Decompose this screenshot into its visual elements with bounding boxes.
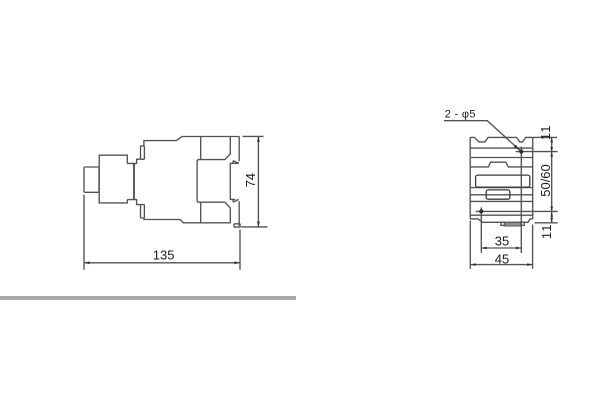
svg-text:35: 35: [495, 233, 509, 248]
svg-text:45: 45: [495, 252, 509, 267]
svg-text:135: 135: [153, 247, 175, 262]
svg-text:11: 11: [539, 223, 554, 239]
svg-text:74: 74: [243, 173, 258, 187]
svg-text:50/60: 50/60: [538, 164, 553, 197]
svg-text:2 - φ5: 2 - φ5: [445, 108, 476, 120]
svg-text:11: 11: [538, 124, 553, 140]
